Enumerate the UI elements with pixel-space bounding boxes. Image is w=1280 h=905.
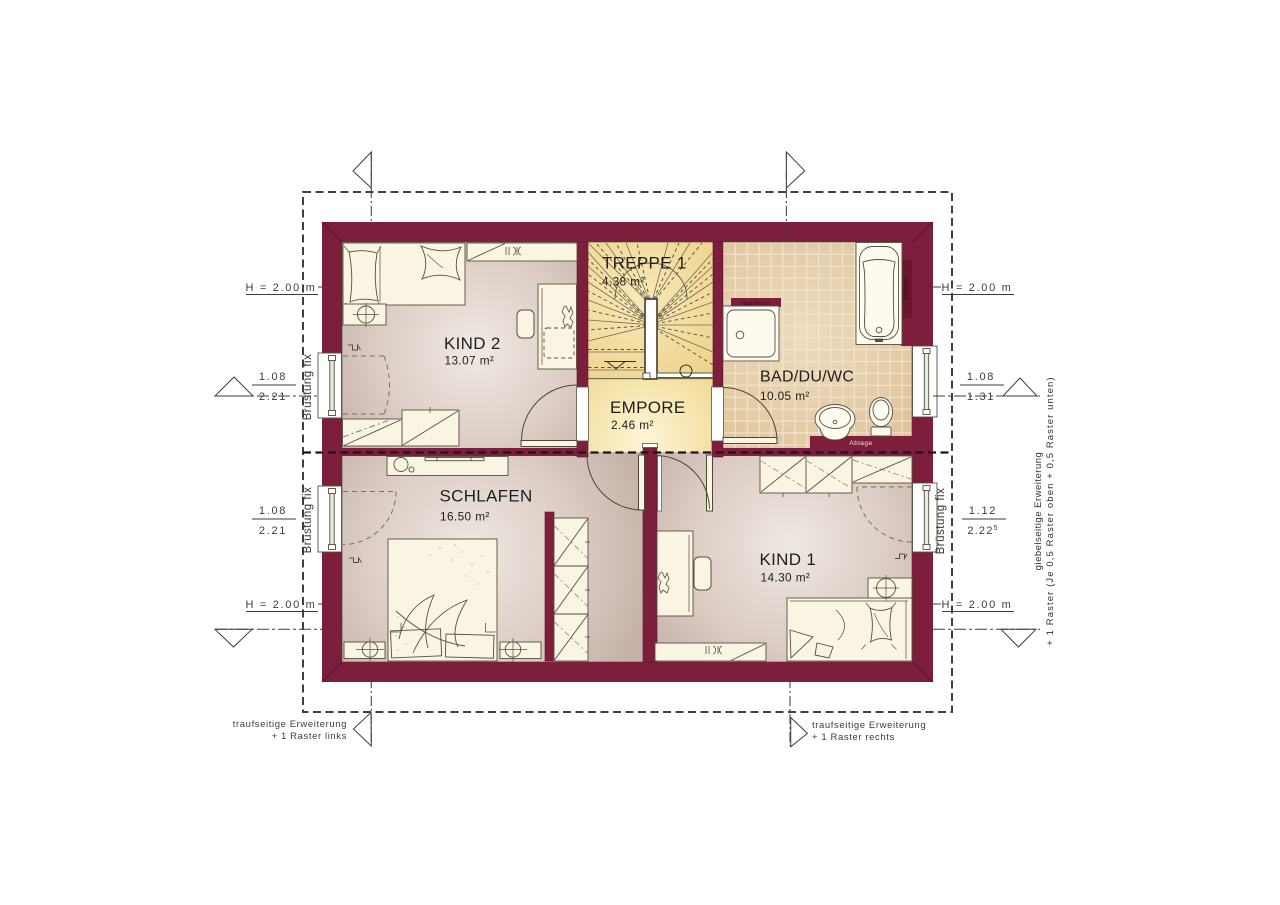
svg-text:1.08: 1.08	[967, 371, 995, 383]
svg-text:KIND 1: KIND 1	[760, 550, 817, 569]
svg-text:2.21: 2.21	[259, 391, 287, 403]
svg-text:H = 2.00 m: H = 2.00 m	[941, 599, 1012, 611]
svg-text:KIND 2: KIND 2	[444, 334, 501, 353]
svg-text:EMPORE: EMPORE	[610, 398, 685, 417]
svg-text:giebelseitige Erweiterung: giebelseitige Erweiterung	[1033, 452, 1044, 571]
svg-text:Ablage: Ablage	[903, 277, 910, 300]
svg-text:1.08: 1.08	[259, 505, 287, 517]
svg-text:2.46 m²: 2.46 m²	[611, 418, 654, 432]
svg-text:14.30 m²: 14.30 m²	[761, 571, 811, 585]
svg-text:1.31: 1.31	[967, 391, 995, 403]
svg-text:H = 2.00 m: H = 2.00 m	[245, 282, 316, 294]
svg-text:traufseitige Erweiterung: traufseitige Erweiterung	[233, 719, 347, 730]
svg-text:+ 1 Raster rechts: + 1 Raster rechts	[812, 732, 895, 743]
svg-text:TREPPE 1: TREPPE 1	[602, 254, 687, 273]
svg-text:13.07 m²: 13.07 m²	[445, 354, 495, 368]
svg-text:SCHLAFEN: SCHLAFEN	[440, 487, 533, 506]
svg-text:4.38 m²: 4.38 m²	[602, 275, 645, 289]
svg-text:H = 2.00 m: H = 2.00 m	[941, 282, 1012, 294]
svg-text:Brüstung fix: Brüstung fix	[302, 354, 314, 421]
svg-text:traufseitige Erweiterung: traufseitige Erweiterung	[812, 720, 926, 731]
svg-text:16.50 m²: 16.50 m²	[440, 510, 490, 524]
svg-text:BAD/DU/WC: BAD/DU/WC	[760, 368, 854, 385]
svg-text:2.21: 2.21	[259, 525, 287, 537]
svg-text:Ablage: Ablage	[849, 440, 872, 447]
svg-text:Brüstung fix: Brüstung fix	[935, 488, 947, 555]
svg-text:+ 1 Raster (Je 0,5 Raster oben: + 1 Raster (Je 0,5 Raster oben + 0,5 Ras…	[1045, 376, 1056, 645]
svg-text:+ 1 Raster links: + 1 Raster links	[272, 731, 347, 742]
svg-text:1.12: 1.12	[969, 505, 997, 517]
svg-text:Brüstung fix: Brüstung fix	[302, 487, 314, 554]
svg-text:10.05 m²: 10.05 m²	[760, 389, 810, 403]
svg-text:1.08: 1.08	[259, 371, 287, 383]
svg-text:H = 2.00 m: H = 2.00 m	[245, 599, 316, 611]
